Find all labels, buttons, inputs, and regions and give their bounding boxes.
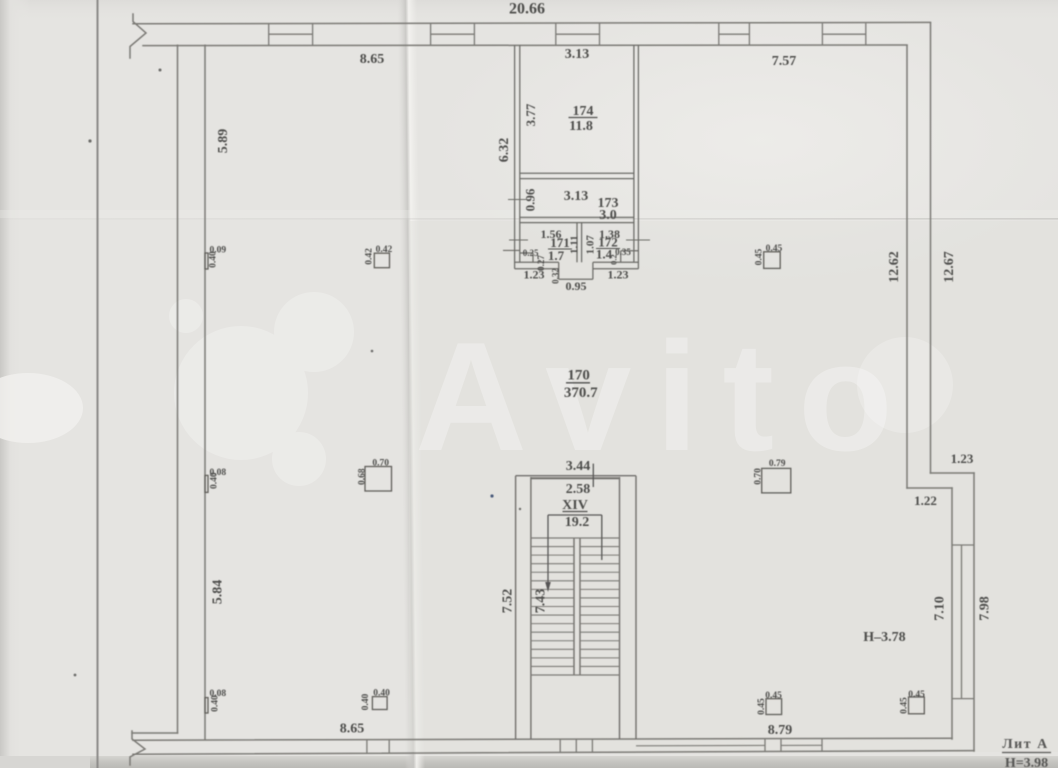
svg-text:0.40: 0.40 xyxy=(373,689,390,699)
svg-text:1.7: 1.7 xyxy=(548,248,565,263)
svg-text:8.65: 8.65 xyxy=(340,722,365,737)
svg-text:0.40: 0.40 xyxy=(211,695,221,712)
svg-text:370.7: 370.7 xyxy=(564,385,598,401)
svg-text:0.45: 0.45 xyxy=(765,691,782,701)
svg-text:8.65: 8.65 xyxy=(360,52,385,67)
svg-text:7.10: 7.10 xyxy=(933,596,948,621)
svg-text:0.45: 0.45 xyxy=(766,244,783,254)
svg-text:3.77: 3.77 xyxy=(523,103,538,126)
svg-text:0.40: 0.40 xyxy=(210,472,220,489)
svg-text:3.13: 3.13 xyxy=(565,47,590,62)
svg-text:1.23: 1.23 xyxy=(608,268,629,282)
svg-text:0.40: 0.40 xyxy=(361,693,371,710)
svg-text:0.45: 0.45 xyxy=(908,690,925,700)
svg-text:0.2: 0.2 xyxy=(609,254,619,265)
svg-text:Лит А: Лит А xyxy=(1002,737,1049,752)
svg-text:0.70: 0.70 xyxy=(754,468,764,485)
svg-text:0.95: 0.95 xyxy=(566,279,587,293)
svg-text:19.2: 19.2 xyxy=(565,515,590,530)
svg-text:0.40: 0.40 xyxy=(209,251,219,268)
svg-text:0.45: 0.45 xyxy=(755,248,765,265)
svg-text:0.96: 0.96 xyxy=(523,188,538,211)
svg-text:0.42: 0.42 xyxy=(376,245,393,255)
svg-text:Н=3.98: Н=3.98 xyxy=(1005,756,1048,768)
svg-text:1.11: 1.11 xyxy=(569,235,581,254)
svg-text:3.44: 3.44 xyxy=(566,459,591,474)
svg-text:3.0: 3.0 xyxy=(599,208,617,223)
svg-text:5.84: 5.84 xyxy=(211,580,226,605)
svg-text:0.45: 0.45 xyxy=(757,698,767,715)
svg-text:2.58: 2.58 xyxy=(566,482,591,497)
svg-text:XIV: XIV xyxy=(562,498,588,513)
svg-text:5.89: 5.89 xyxy=(216,129,231,154)
svg-text:Avito: Avito xyxy=(415,310,917,483)
svg-text:0.42: 0.42 xyxy=(365,248,375,265)
svg-text:12.62: 12.62 xyxy=(887,251,902,283)
svg-text:7.57: 7.57 xyxy=(772,54,797,69)
svg-text:8.79: 8.79 xyxy=(768,723,793,738)
svg-text:0.32: 0.32 xyxy=(551,268,561,284)
svg-text:Н–3.78: Н–3.78 xyxy=(863,630,905,645)
svg-text:6.32: 6.32 xyxy=(497,138,512,163)
svg-text:3.13: 3.13 xyxy=(564,189,589,204)
svg-text:12.67: 12.67 xyxy=(942,251,957,283)
svg-text:1.23: 1.23 xyxy=(524,268,545,282)
svg-text:11.8: 11.8 xyxy=(569,119,593,134)
svg-text:0.79: 0.79 xyxy=(769,459,786,469)
svg-text:1.22: 1.22 xyxy=(914,493,937,508)
svg-text:7.52: 7.52 xyxy=(501,589,516,614)
svg-text:1.07: 1.07 xyxy=(585,235,597,255)
svg-text:170: 170 xyxy=(567,368,590,384)
svg-text:1.23: 1.23 xyxy=(951,451,974,466)
svg-text:174: 174 xyxy=(573,104,594,119)
svg-text:7.98: 7.98 xyxy=(978,596,993,621)
svg-text:7.43: 7.43 xyxy=(534,589,549,614)
svg-text:20.66: 20.66 xyxy=(509,1,545,18)
svg-text:0.45: 0.45 xyxy=(900,697,910,714)
svg-text:0.68: 0.68 xyxy=(357,468,367,485)
svg-text:0.70: 0.70 xyxy=(372,459,389,469)
